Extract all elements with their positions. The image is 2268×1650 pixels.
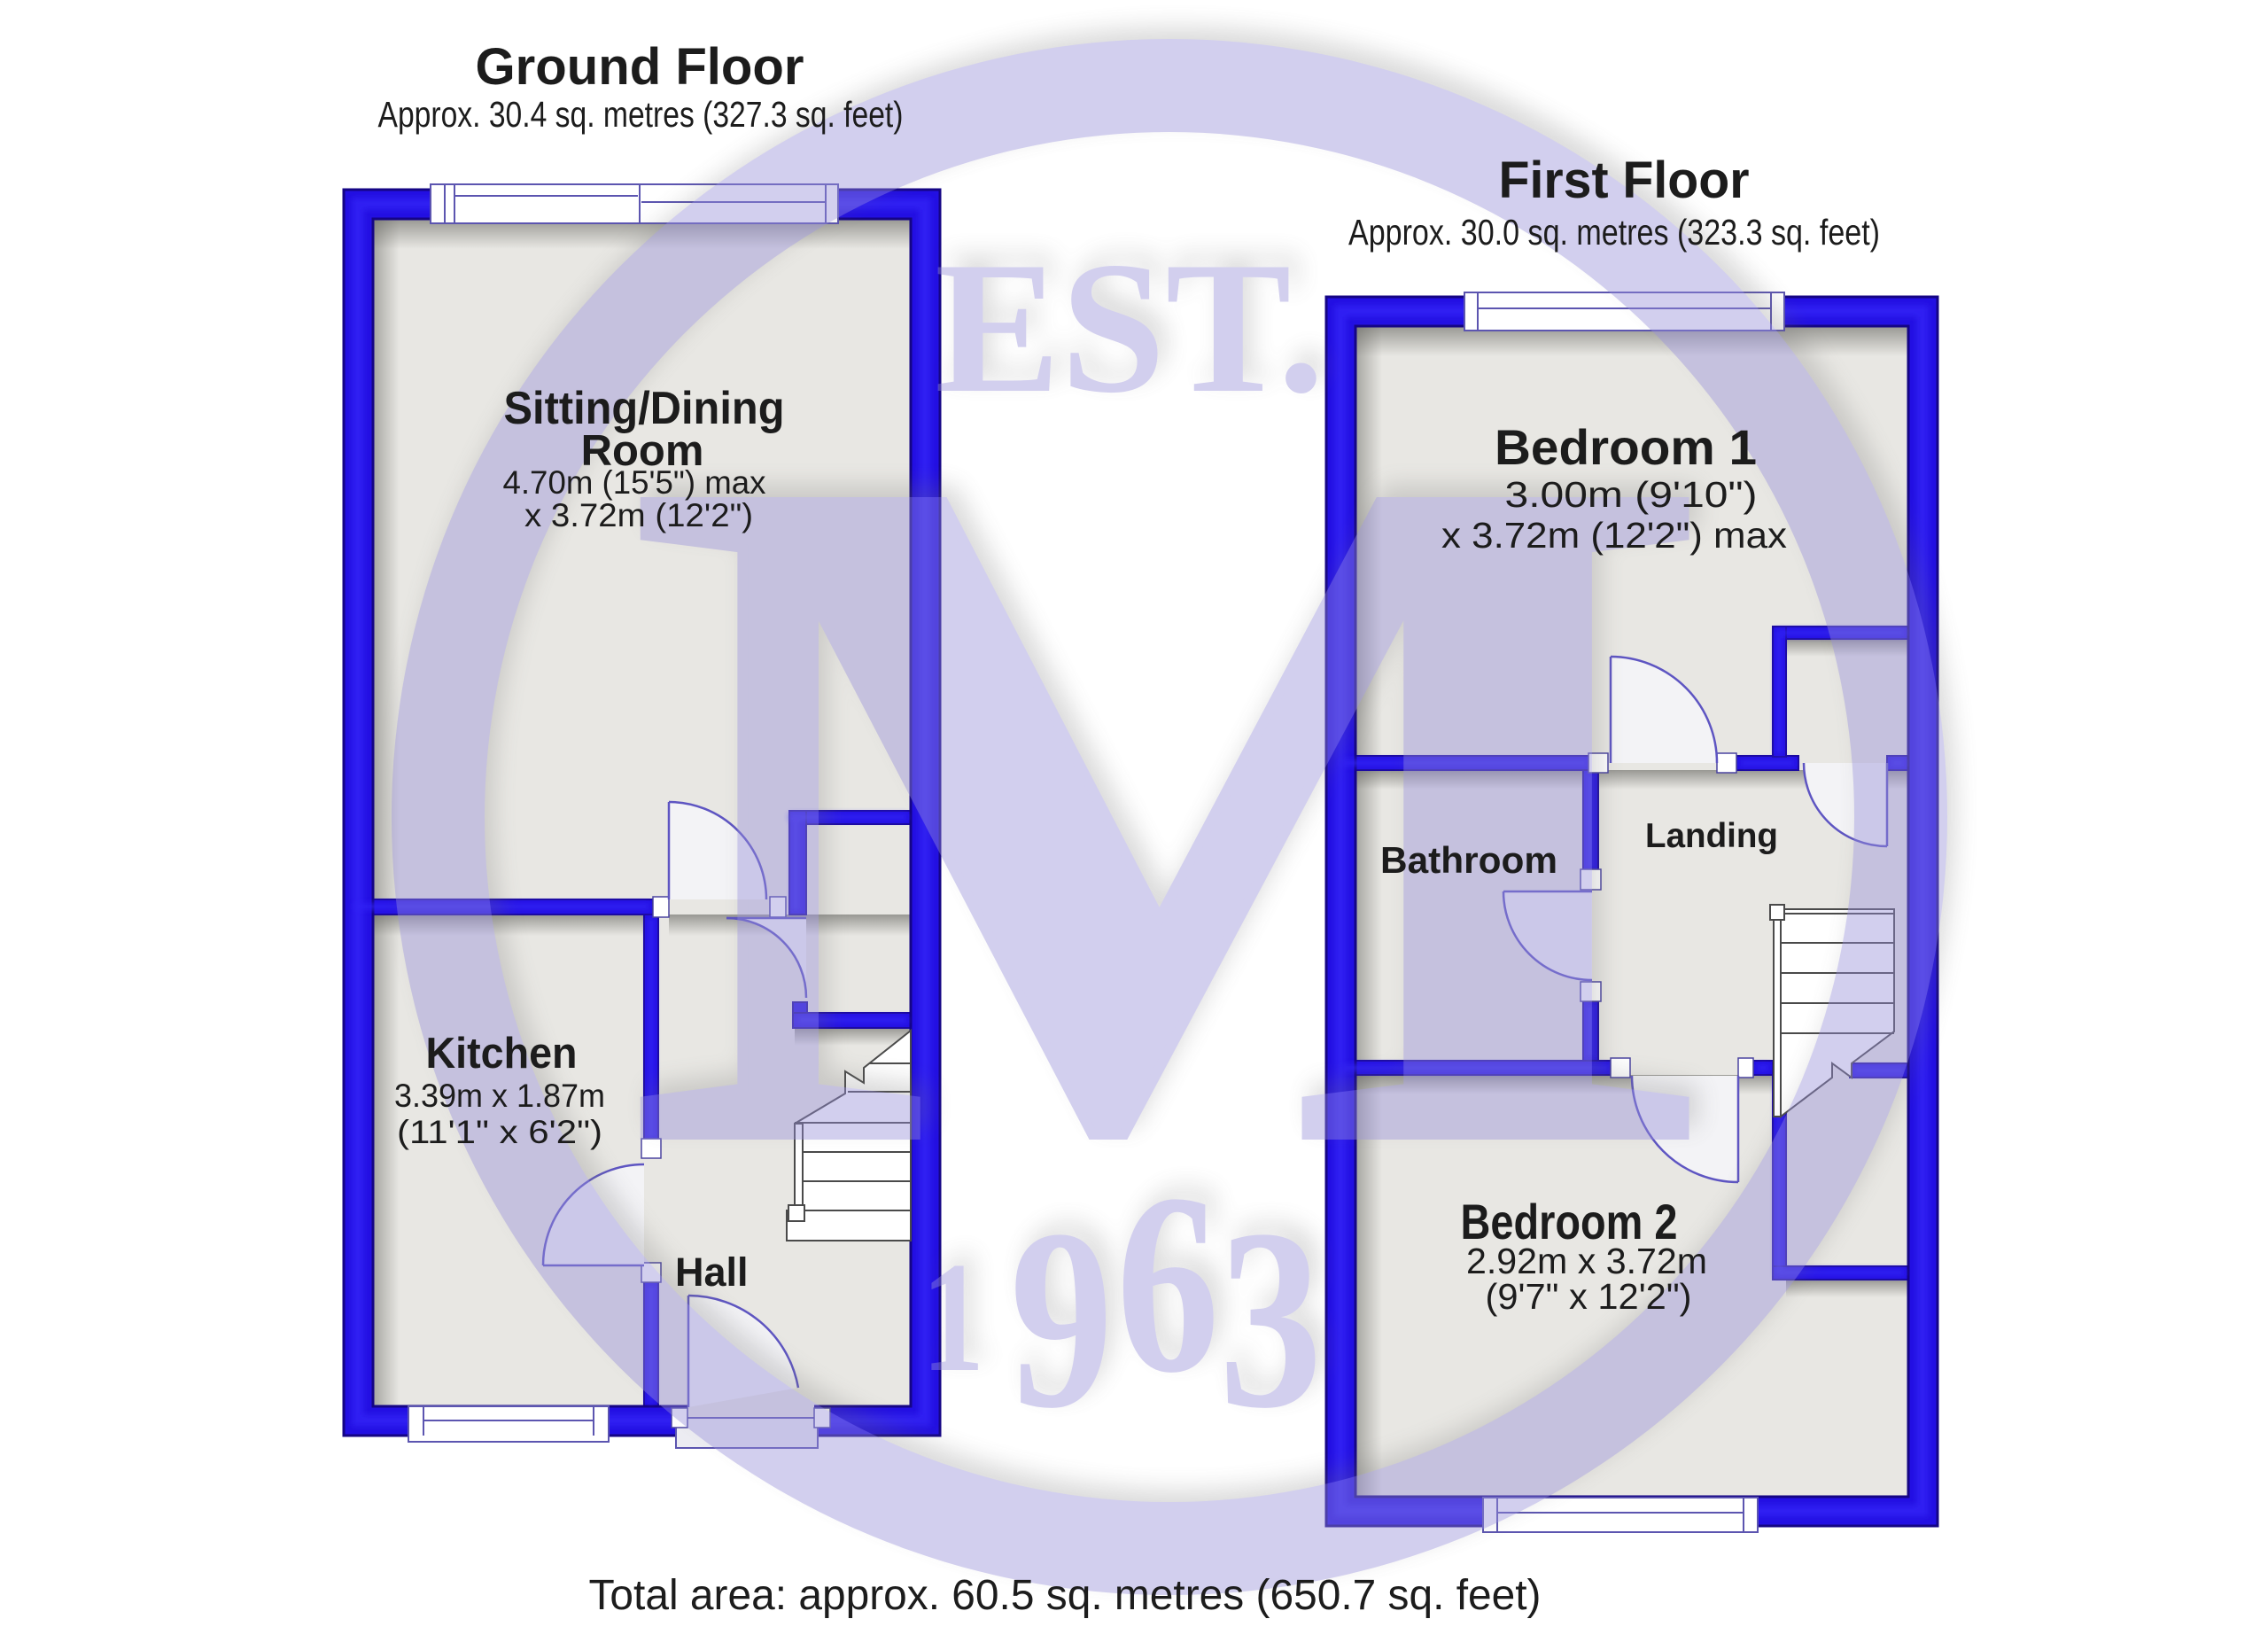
svg-text:Kitchen: Kitchen <box>426 1030 578 1078</box>
svg-text:3.00m (9'10"): 3.00m (9'10") <box>1505 474 1758 515</box>
svg-text:First Floor: First Floor <box>1499 152 1750 209</box>
svg-text:Approx. 30.0 sq. metres (323.3: Approx. 30.0 sq. metres (323.3 sq. feet) <box>1348 212 1880 253</box>
svg-text:Bedroom 1: Bedroom 1 <box>1495 419 1757 475</box>
svg-text:Hall: Hall <box>675 1249 749 1295</box>
svg-text:Approx. 30.4 sq. metres (327.3: Approx. 30.4 sq. metres (327.3 sq. feet) <box>378 94 904 135</box>
svg-text:4.70m (15'5") max: 4.70m (15'5") max <box>503 463 766 501</box>
svg-text:Ground Floor: Ground Floor <box>476 38 804 96</box>
svg-text:x 3.72m (12'2") max: x 3.72m (12'2") max <box>1441 515 1788 556</box>
svg-text:3.39m x 1.87m: 3.39m x 1.87m <box>394 1077 605 1114</box>
svg-text:Landing: Landing <box>1645 817 1778 855</box>
svg-text:x 3.72m (12'2"): x 3.72m (12'2") <box>524 496 753 533</box>
svg-text:(11'1" x 6'2"): (11'1" x 6'2") <box>397 1113 602 1150</box>
svg-text:Bathroom: Bathroom <box>1380 839 1557 881</box>
svg-text:(9'7" x 12'2"): (9'7" x 12'2") <box>1486 1276 1692 1317</box>
svg-text:Total area: approx. 60.5 sq. m: Total area: approx. 60.5 sq. metres (650… <box>589 1572 1542 1619</box>
